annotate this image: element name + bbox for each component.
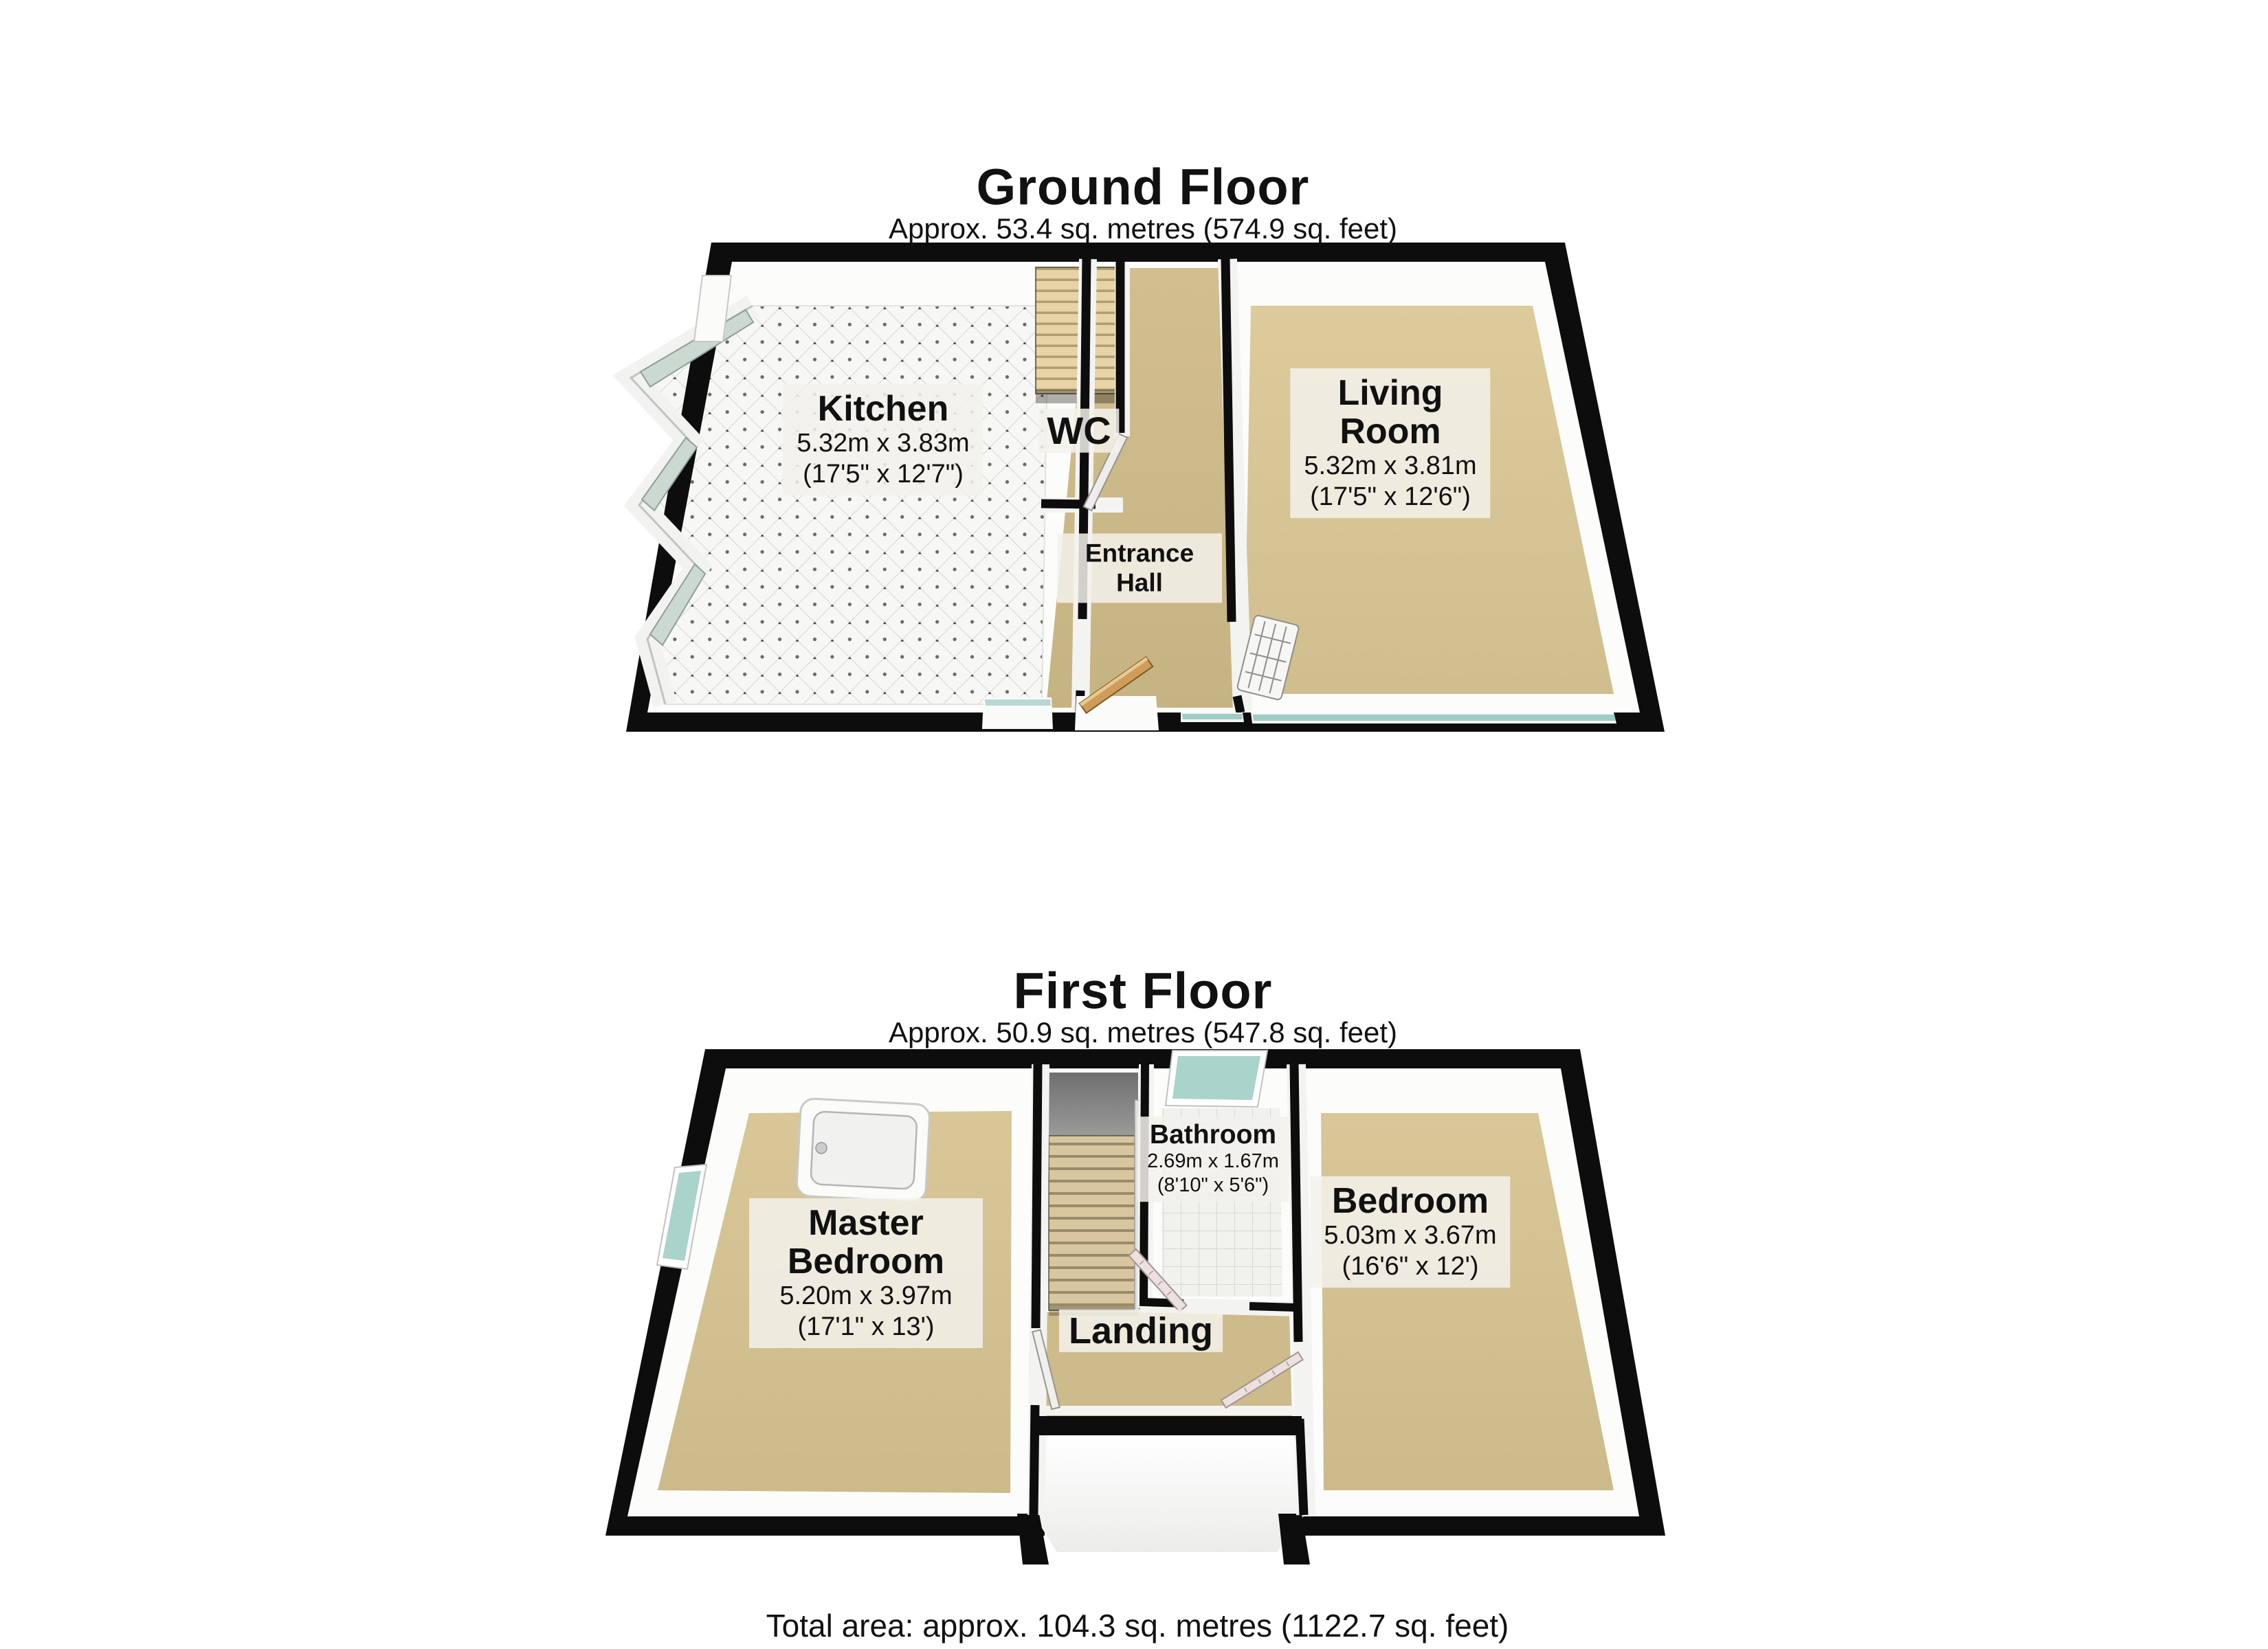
- first-floor-plan: Master Bedroom 5.20m x 3.97m (17'1" x 13…: [591, 1034, 1670, 1567]
- label-living-room: Living Room 5.32m x 3.81m (17'5" x 12'6"…: [1290, 368, 1490, 518]
- landing-name: Landing: [1069, 1311, 1213, 1351]
- living-room-name: Living Room: [1308, 374, 1473, 451]
- label-entrance-hall: Entrance Hall: [1057, 533, 1222, 603]
- total-area-text: Total area: approx. 104.3 sq. metres (11…: [766, 1607, 1509, 1644]
- ground-floor-drawing: [605, 237, 1677, 749]
- label-bedroom: Bedroom 5.03m x 3.67m (16'6" x 12'): [1310, 1176, 1510, 1288]
- stairwell-void: [1017, 1435, 1310, 1564]
- bathroom-dims-metric: 2.69m x 1.67m: [1147, 1149, 1279, 1174]
- master-bedroom-dims-imperial: (17'1" x 13'): [763, 1312, 969, 1343]
- entrance-hall-name: Entrance Hall: [1071, 539, 1208, 597]
- bedroom-dims-metric: 5.03m x 3.67m: [1324, 1220, 1496, 1251]
- kitchen-dims-imperial: (17'5" x 12'7"): [797, 459, 969, 490]
- kitchen-dims-metric: 5.32m x 3.83m: [797, 428, 969, 459]
- landing-void-wall: [1036, 1416, 1302, 1435]
- bedroom-name: Bedroom: [1324, 1182, 1496, 1220]
- bathroom-dims-imperial: (8'10" x 5'6"): [1147, 1174, 1279, 1198]
- bathroom-window: [1172, 1056, 1260, 1100]
- living-room-window: [1253, 715, 1616, 721]
- wc-name: WC: [1047, 410, 1111, 451]
- master-bedroom-name: Master Bedroom: [763, 1204, 969, 1281]
- bathtub-tap: [816, 1142, 827, 1154]
- master-wall: [1036, 1064, 1038, 1328]
- first-floor-title: First Floor: [1014, 962, 1273, 1020]
- first-stairs: [1049, 1073, 1139, 1316]
- master-bedroom-dims-metric: 5.20m x 3.97m: [763, 1281, 969, 1312]
- label-wc: WC: [1038, 409, 1119, 453]
- hall-front-window: [1182, 714, 1243, 719]
- label-kitchen: Kitchen 5.32m x 3.83m (17'5" x 12'7"): [783, 384, 983, 495]
- label-bathroom: Bathroom 2.69m x 1.67m (8'10" x 5'6"): [1137, 1117, 1289, 1202]
- label-master-bedroom: Master Bedroom 5.20m x 3.97m (17'1" x 13…: [749, 1198, 983, 1348]
- living-room-dims-metric: 5.32m x 3.81m: [1304, 451, 1476, 482]
- floorplan-page: Ground Floor Approx. 53.4 sq. metres (57…: [0, 0, 2268, 1649]
- ground-floor-plan: Kitchen 5.32m x 3.83m (17'5" x 12'7") WC…: [605, 237, 1677, 749]
- label-landing: Landing: [1059, 1310, 1223, 1352]
- ground-floor-title: Ground Floor: [977, 158, 1310, 216]
- bedroom-wall: [1294, 1064, 1298, 1342]
- bedroom-dims-imperial: (16'6" x 12'): [1324, 1251, 1496, 1282]
- bathtub: [796, 1098, 930, 1202]
- living-room-dims-imperial: (17'5" x 12'6"): [1304, 482, 1476, 513]
- kitchen-name: Kitchen: [797, 390, 969, 428]
- hall-living-wall: [1225, 258, 1232, 622]
- bathroom-name: Bathroom: [1147, 1121, 1279, 1149]
